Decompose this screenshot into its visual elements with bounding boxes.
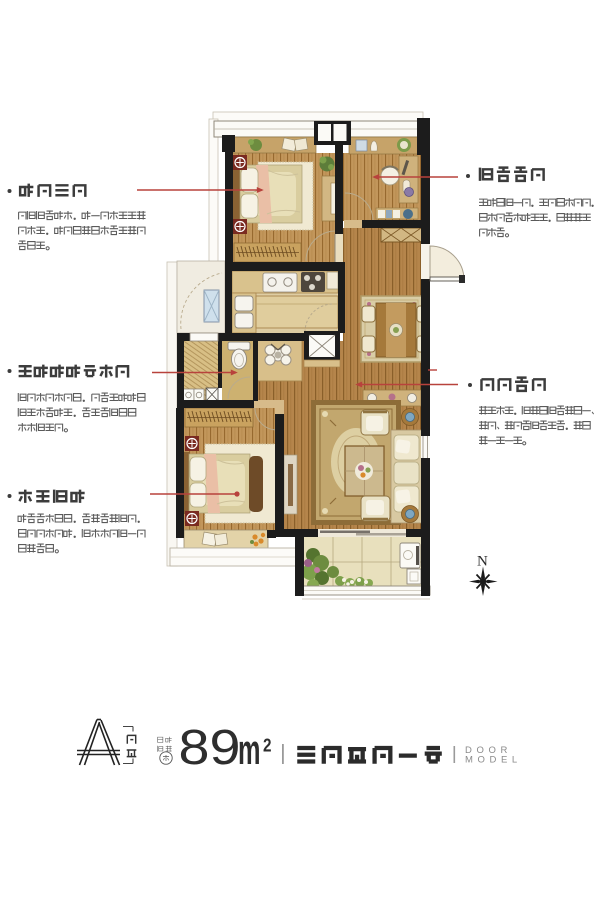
svg-text:2: 2 bbox=[263, 736, 272, 756]
svg-text:m: m bbox=[238, 726, 261, 773]
svg-text:89: 89 bbox=[179, 720, 241, 775]
svg-text:MODEL: MODEL bbox=[465, 755, 522, 766]
svg-text:N: N bbox=[477, 554, 488, 570]
